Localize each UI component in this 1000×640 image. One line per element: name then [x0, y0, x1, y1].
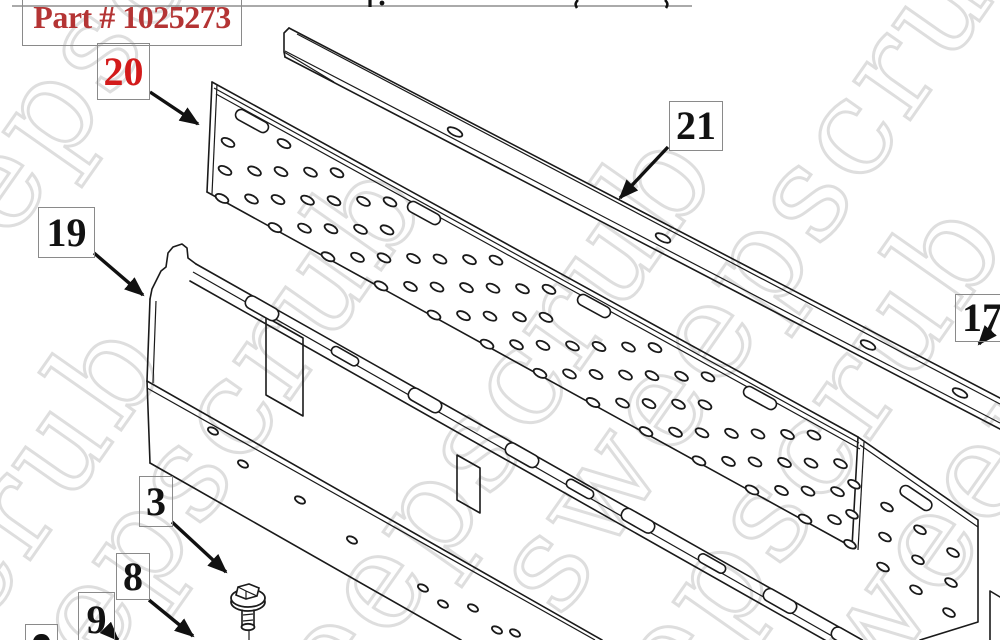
callout-19-arrow [94, 253, 143, 295]
parts-diagram-image: sweepscrub sweepscrub sweepscrub sweepsc… [0, 0, 1000, 640]
clipped-digit-fragment [33, 634, 50, 640]
callout-8: 8 [116, 553, 150, 600]
callout-21: 21 [669, 101, 723, 151]
callout-9: 9 [78, 592, 115, 640]
callout-17: 17 [955, 294, 1000, 342]
callout-20-arrow [150, 92, 198, 124]
callout-clipped [25, 624, 58, 640]
callout-3: 3 [139, 476, 173, 527]
callout-19: 19 [38, 207, 95, 258]
part-number-box: Part # 1025273 [22, 0, 242, 46]
diagram-line-art: sweepscrub sweepscrub sweepscrub sweepsc… [0, 0, 1000, 640]
callout-20: 20 [97, 43, 150, 100]
